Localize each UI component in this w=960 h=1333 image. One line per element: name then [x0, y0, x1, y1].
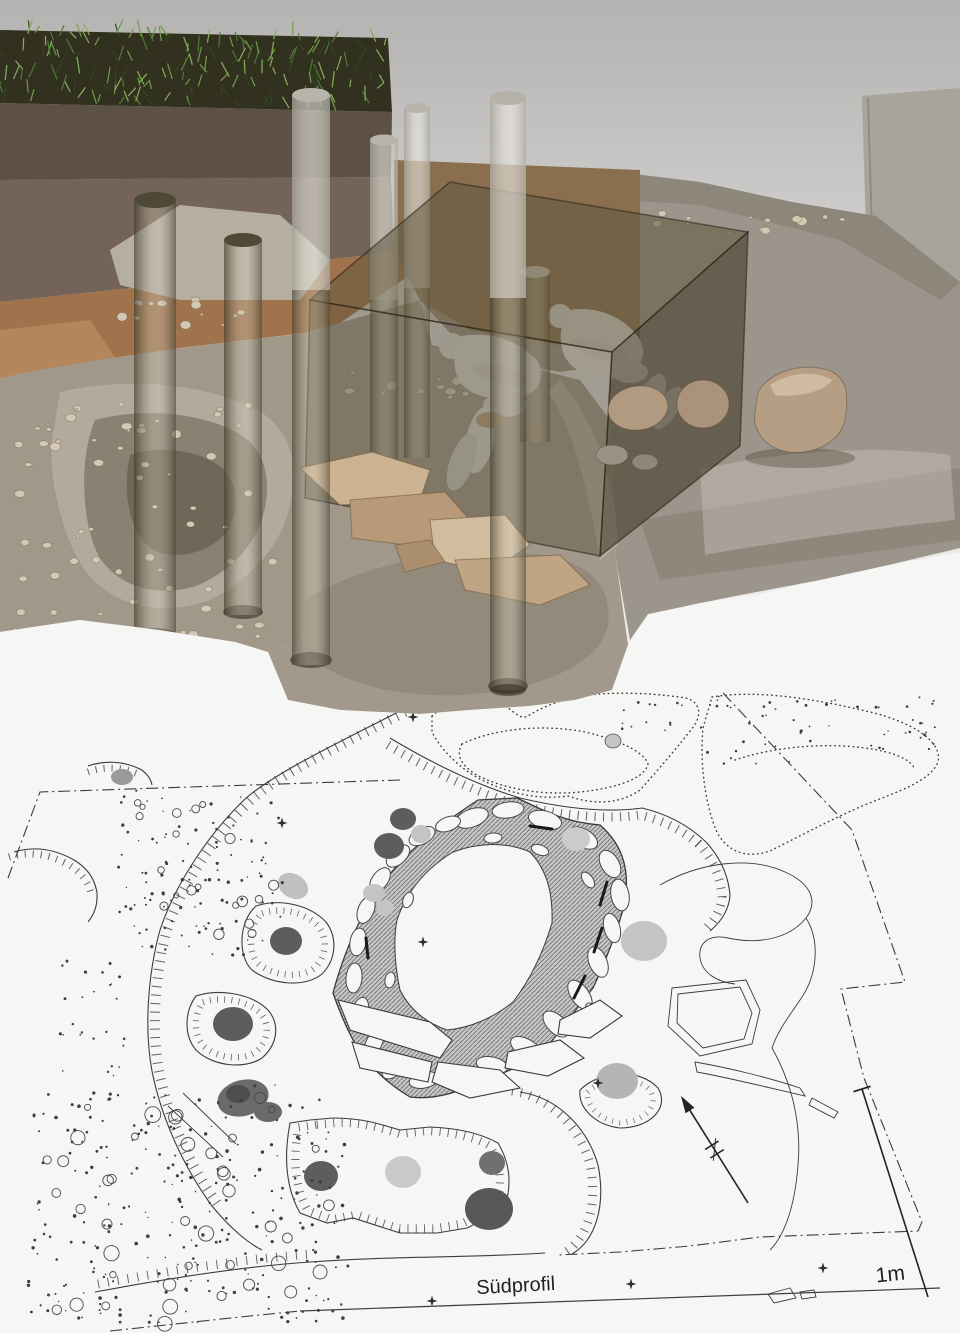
figure-image: Südprofil 1m: [0, 0, 960, 1333]
topsoil-layer: [0, 103, 392, 180]
wooden-post-left-front: [134, 192, 176, 640]
wooden-post-centre: [490, 91, 526, 696]
figure-canvas: Südprofil 1m: [0, 0, 960, 1333]
profile-label: Südprofil: [476, 1273, 556, 1299]
wooden-post-left-mid: [224, 233, 262, 615]
scale-label: 1m: [875, 1262, 906, 1288]
wooden-post-tall-left: [292, 88, 330, 665]
